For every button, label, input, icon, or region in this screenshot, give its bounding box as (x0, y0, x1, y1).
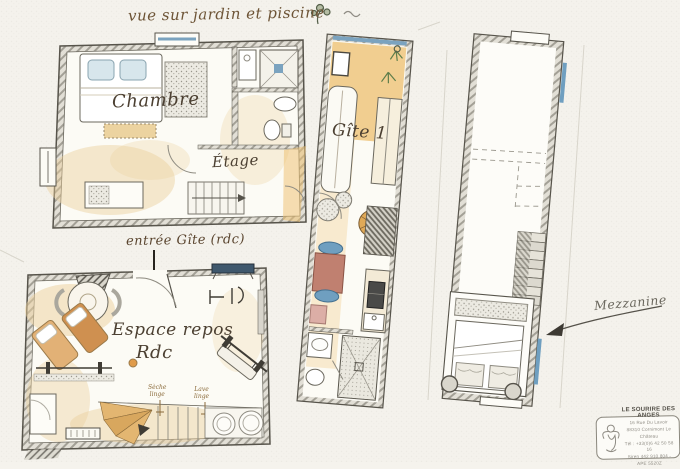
balcony-window-top (155, 33, 199, 46)
stamp-phone: Tél : +33(0)6 42 50 58 16 (622, 440, 676, 455)
label-entree-gite: entrée Gîte (rdc) (126, 232, 245, 249)
seche-linge-line2: linge (150, 391, 165, 398)
kitchenette (361, 269, 390, 333)
shower-gite (338, 335, 381, 400)
stamp: LE SOURIRE DES ANGES 16 Rue Du Lavoir 88… (596, 415, 680, 460)
daybed-etage (85, 182, 143, 208)
window-left (40, 148, 56, 186)
stairs-mezzanine (512, 231, 546, 305)
radiator (66, 428, 100, 439)
angel-doodle (600, 421, 623, 455)
bed-bench (104, 124, 156, 138)
label-chambre: Chambre (112, 88, 200, 112)
floor-plan-scan: vue sur jardin et piscine Chambre Étage … (0, 0, 680, 462)
lave-linge-line2: linge (194, 393, 209, 400)
stairs-etage (188, 182, 246, 214)
label-seche-linge: Sèche linge (148, 385, 166, 399)
floorplan-drawing (0, 0, 680, 462)
label-etage: Étage (212, 151, 260, 171)
sink-etage (274, 97, 296, 111)
plan-etage (40, 33, 306, 228)
hatch-strip (34, 374, 114, 381)
stamp-address2: 88310 Cornimont Le Château (622, 426, 676, 441)
closet-left (30, 394, 56, 434)
shower-etage (260, 50, 298, 88)
picture-frame (332, 52, 350, 76)
page-title: vue sur jardin et piscine (128, 3, 325, 24)
stairs-gite (363, 206, 397, 256)
label-gite1: Gîte 1 (331, 120, 387, 144)
label-rdc: Rdc (136, 342, 173, 363)
stamp-registration: Siren 442 910 804 - APE 5520Z (622, 453, 676, 468)
label-lave-linge: Lave linge (194, 387, 209, 401)
mirror (258, 290, 264, 334)
cabinet-pink (310, 305, 327, 324)
laundry-machines (205, 408, 263, 438)
stamp-text: LE SOURIRE DES ANGES 16 Rue Du Lavoir 88… (621, 407, 676, 468)
label-espace-repos: Espace repos (112, 320, 233, 340)
stamp-name: LE SOURIRE DES ANGES (621, 407, 675, 420)
bed-mezzanine (441, 292, 535, 401)
